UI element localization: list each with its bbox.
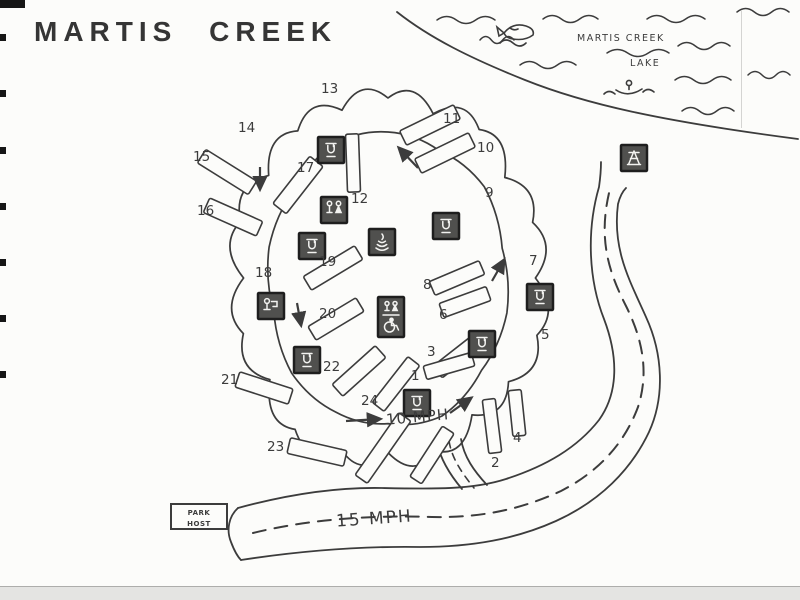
dump-station-icon	[258, 293, 284, 319]
site-number-8: 8	[423, 277, 432, 293]
lake-label-line1: MARTIS CREEK	[577, 33, 665, 44]
scan-artifact	[0, 34, 6, 41]
site-number-19: 19	[319, 254, 336, 270]
site-number-6: 6	[439, 307, 448, 323]
map-title: MARTIS CREEK	[34, 16, 337, 48]
site-number-20: 20	[319, 306, 336, 322]
campsite-spur	[345, 134, 360, 192]
site-number-23: 23	[267, 439, 284, 455]
direction-arrow	[297, 303, 301, 325]
entrance-road-right-edge	[461, 439, 487, 485]
accessible-restroom-icon	[378, 297, 404, 337]
site-number-1: 1	[411, 368, 420, 384]
site-number-16: 16	[197, 203, 214, 219]
scan-artifact	[0, 259, 6, 266]
site-number-9: 9	[485, 185, 494, 201]
site-number-24: 24	[361, 393, 378, 409]
scan-artifact	[0, 315, 6, 322]
scan-artifact	[0, 0, 25, 8]
campsite-spur	[482, 398, 501, 453]
water-faucet-icon	[433, 213, 459, 239]
site-number-18: 18	[255, 265, 272, 281]
wave-mark	[647, 16, 705, 23]
site-number-12: 12	[351, 191, 368, 207]
park-host-sign: PARK HOST	[170, 503, 228, 530]
wave-mark	[675, 77, 731, 84]
scan-edge-band	[0, 586, 800, 600]
main-road-left-cap	[229, 508, 241, 560]
scan-artifact	[0, 203, 6, 210]
campsite-spur	[410, 426, 454, 484]
wave-mark	[543, 16, 598, 23]
scan-artifact	[0, 90, 6, 97]
icon-background	[433, 213, 459, 239]
direction-arrow	[492, 260, 504, 281]
site-number-2: 2	[491, 455, 500, 471]
wave-mark	[748, 72, 790, 79]
campfire-icon	[369, 229, 395, 255]
scan-artifact	[0, 371, 6, 378]
scanned-campground-map: 123456789101112131415161718192021222324 …	[0, 0, 800, 600]
park-host-line2: HOST	[172, 519, 226, 530]
icon-background	[321, 197, 347, 223]
wave-mark	[682, 108, 734, 115]
site-number-7: 7	[529, 253, 538, 269]
site-number-13: 13	[321, 81, 338, 97]
site-number-21: 21	[221, 372, 238, 388]
fish-icon	[497, 25, 533, 46]
site-number-22: 22	[323, 359, 340, 375]
water-faucet-icon	[294, 347, 320, 373]
boat-icon	[604, 80, 654, 94]
icon-background	[469, 331, 495, 357]
water-faucet-icon	[318, 137, 344, 163]
wave-mark	[678, 43, 730, 50]
site-number-10: 10	[477, 140, 494, 156]
site-number-17: 17	[297, 160, 314, 176]
site-number-14: 14	[238, 120, 255, 136]
campsite-spur	[235, 372, 293, 405]
site-number-5: 5	[541, 327, 550, 343]
icon-background	[258, 293, 284, 319]
icon-background	[527, 284, 553, 310]
park-host-line1: PARK	[172, 508, 226, 519]
restroom-icon	[321, 197, 347, 223]
site-number-3: 3	[427, 344, 436, 360]
campsite-spurs	[197, 105, 526, 484]
wave-mark	[607, 50, 669, 57]
site-number-11: 11	[443, 111, 460, 127]
site-number-4: 4	[513, 430, 522, 446]
wave-mark	[437, 17, 495, 24]
scan-artifact	[0, 147, 6, 154]
campsite-spur	[287, 438, 347, 467]
lake-label-line2: LAKE	[630, 58, 660, 69]
scan-artifact	[741, 10, 742, 128]
icon-background	[294, 347, 320, 373]
icon-background	[318, 137, 344, 163]
water-faucet-icon	[469, 331, 495, 357]
site-number-15: 15	[193, 149, 210, 165]
wave-mark	[520, 62, 576, 69]
wave-mark	[737, 9, 789, 16]
water-faucet-icon	[527, 284, 553, 310]
picnic-table-icon	[621, 145, 647, 171]
